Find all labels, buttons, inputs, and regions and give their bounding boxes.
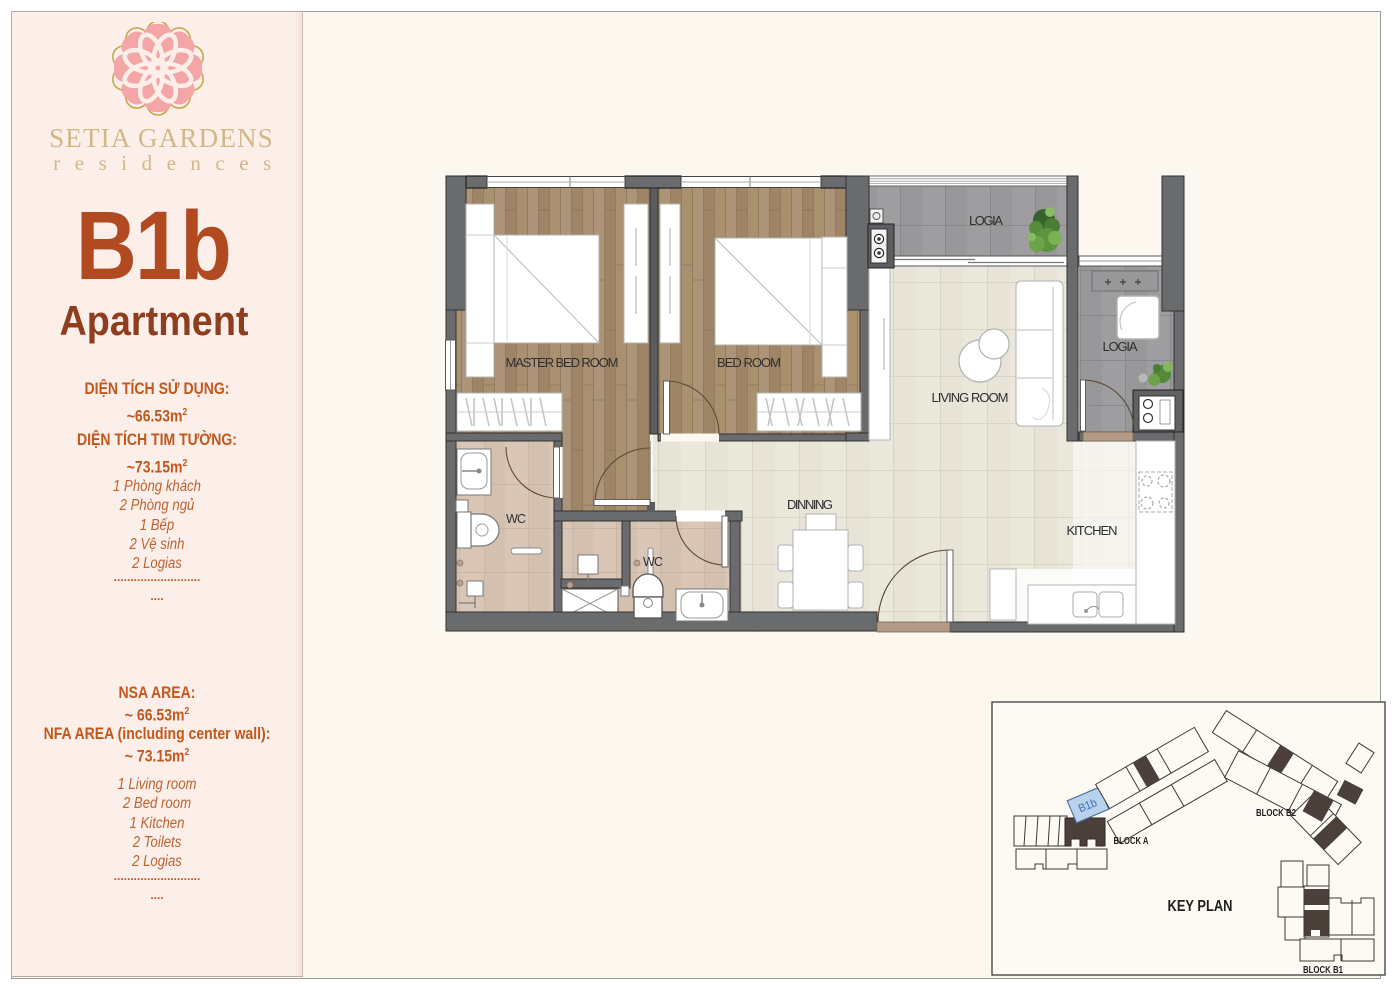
svg-text:BLOCK B2: BLOCK B2 — [1256, 807, 1296, 819]
svg-text:DINNING: DINNING — [787, 497, 833, 512]
svg-text:LIVING ROOM: LIVING ROOM — [932, 390, 1009, 405]
svg-text:LOGIA: LOGIA — [1103, 339, 1138, 354]
svg-text:LOGIA: LOGIA — [969, 213, 1003, 228]
svg-text:BLOCK A: BLOCK A — [1114, 835, 1149, 847]
svg-text:WC: WC — [643, 555, 663, 569]
svg-text:BED ROOM: BED ROOM — [717, 355, 781, 370]
svg-text:BLOCK B1: BLOCK B1 — [1303, 964, 1343, 976]
svg-text:MASTER BED ROOM: MASTER BED ROOM — [506, 355, 619, 370]
svg-text:KITCHEN: KITCHEN — [1067, 523, 1118, 538]
svg-text:WC: WC — [506, 512, 526, 526]
svg-text:KEY PLAN: KEY PLAN — [1168, 898, 1233, 915]
